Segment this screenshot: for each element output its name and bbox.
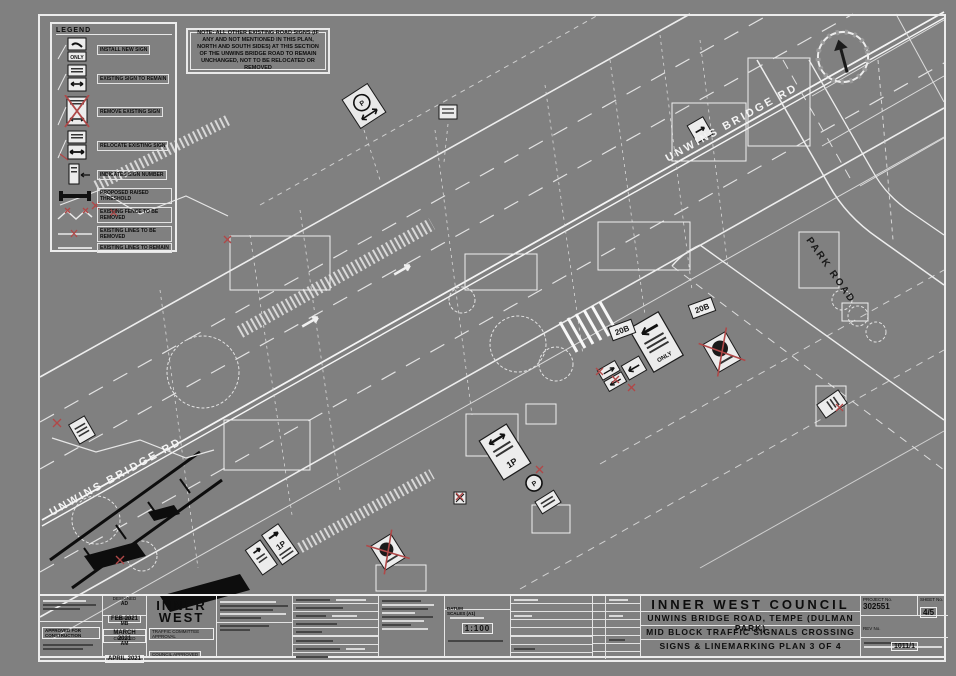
raised-threshold-icon xyxy=(56,188,94,204)
legend-item-label: RELOCATE EXISTING SIGN xyxy=(97,141,168,151)
svg-text:ONLY: ONLY xyxy=(70,55,84,61)
date-initials: AD xyxy=(103,601,146,607)
title-block-dates: DESIGNED AD FEB 2021 DRAWN MB MARCH 2021… xyxy=(102,596,146,656)
title-block-fields xyxy=(292,596,378,656)
title-block-titles: INNER WEST COUNCIL UNWINS BRIDGE ROAD, T… xyxy=(640,596,860,656)
legend-title: LEGEND xyxy=(56,27,172,35)
existing-sign-icon xyxy=(56,64,94,94)
title-block-design xyxy=(216,596,292,656)
scale-value: 1:100 xyxy=(462,623,493,634)
legend-item-label: EXISTING LINES TO BE REMOVED xyxy=(97,226,172,242)
legend-item: EXISTING SIGN TO REMAIN xyxy=(56,64,172,94)
legend-item-label: INDICATES SIGN NUMBER xyxy=(97,170,167,180)
legend-item: ONLY INSTALL NEW SIGN xyxy=(56,37,172,63)
legend-item-label: INSTALL NEW SIGN xyxy=(97,45,150,55)
legend-item: REMOVE EXISTING SIGN xyxy=(56,95,172,129)
legend-panel: LEGEND ONLY INSTALL NEW SIGN EXISTING SI… xyxy=(50,22,177,252)
notes-panel: NOTE: ALL OTHER EXISTING ROAD SIGNS (IF … xyxy=(186,28,330,74)
install-new-sign-icon: ONLY xyxy=(56,37,94,63)
title-block-numbers: PROJECT No. 302551 SHEET No. 4/5 REV No.… xyxy=(860,596,948,656)
title-block-cad xyxy=(378,596,444,656)
council-title: INNER WEST COUNCIL xyxy=(641,596,860,612)
lines-removed-icon xyxy=(56,228,94,240)
sign-number-icon xyxy=(56,163,94,187)
date-value: APRIL 2021 xyxy=(105,655,144,663)
title-block-notes: APPROVED FOR CONSTRUCTION xyxy=(40,596,102,656)
approval-line: COUNCIL APPROVED xyxy=(149,651,201,658)
legend-item-label: EXISTING SIGN TO REMAIN xyxy=(97,74,169,84)
project-no: 302551 xyxy=(863,602,915,611)
legend-item: EXISTING LINES TO REMAIN xyxy=(56,243,172,253)
rev-label: REV No. xyxy=(863,626,881,631)
revision-table xyxy=(510,596,592,656)
scale-label: SCALES (A1) xyxy=(445,610,510,617)
approval-stamp: APPROVED FOR CONSTRUCTION xyxy=(42,627,100,639)
legend-item: EXISTING FENCE TO BE REMOVED xyxy=(56,205,172,225)
sheet-no: 4/5 xyxy=(920,607,937,618)
issue-table xyxy=(592,596,640,656)
approval-line: TRAFFIC COMMITTEE APPROVAL xyxy=(149,628,214,640)
plan-sheet: P ONLY xyxy=(0,0,956,676)
relocate-sign-icon xyxy=(56,130,94,162)
legend-item-label: PROPOSED RAISED THRESHOLD xyxy=(97,188,172,204)
legend-item-label: EXISTING LINES TO REMAIN xyxy=(97,243,172,253)
project-title-2: MID BLOCK TRAFFIC SIGNALS CROSSING xyxy=(641,626,860,640)
legend-item: INDICATES SIGN NUMBER xyxy=(56,163,172,187)
project-title-1: UNWINS BRIDGE ROAD, TEMPE (DULMAN PARK) xyxy=(641,612,860,626)
legend-item-label: REMOVE EXISTING SIGN xyxy=(97,107,163,117)
legend-item: PROPOSED RAISED THRESHOLD xyxy=(56,188,172,204)
title-block-scale: DATUM SCALES (A1) 1:100 xyxy=(444,596,510,656)
legend-item: EXISTING LINES TO BE REMOVED xyxy=(56,226,172,242)
remove-sign-icon xyxy=(56,95,94,129)
project-title-3: SIGNS & LINEMARKING PLAN 3 OF 4 xyxy=(641,640,860,651)
legend-item-label: EXISTING FENCE TO BE REMOVED xyxy=(97,207,172,223)
sheet-no-label: SHEET No. xyxy=(920,597,946,602)
note-text: NOTE: ALL OTHER EXISTING ROAD SIGNS (IF … xyxy=(190,32,326,70)
title-block-logo: INNER WEST TRAFFIC COMMITTEE APPROVAL CO… xyxy=(146,596,216,656)
fence-removed-icon xyxy=(56,205,94,225)
title-block: APPROVED FOR CONSTRUCTION DESIGNED AD FE… xyxy=(38,594,946,658)
legend-item: RELOCATE EXISTING SIGN xyxy=(56,130,172,162)
rev-no: 1011/1 xyxy=(891,642,918,651)
council-logo: INNER WEST xyxy=(147,600,216,625)
lines-remain-icon xyxy=(56,243,94,253)
